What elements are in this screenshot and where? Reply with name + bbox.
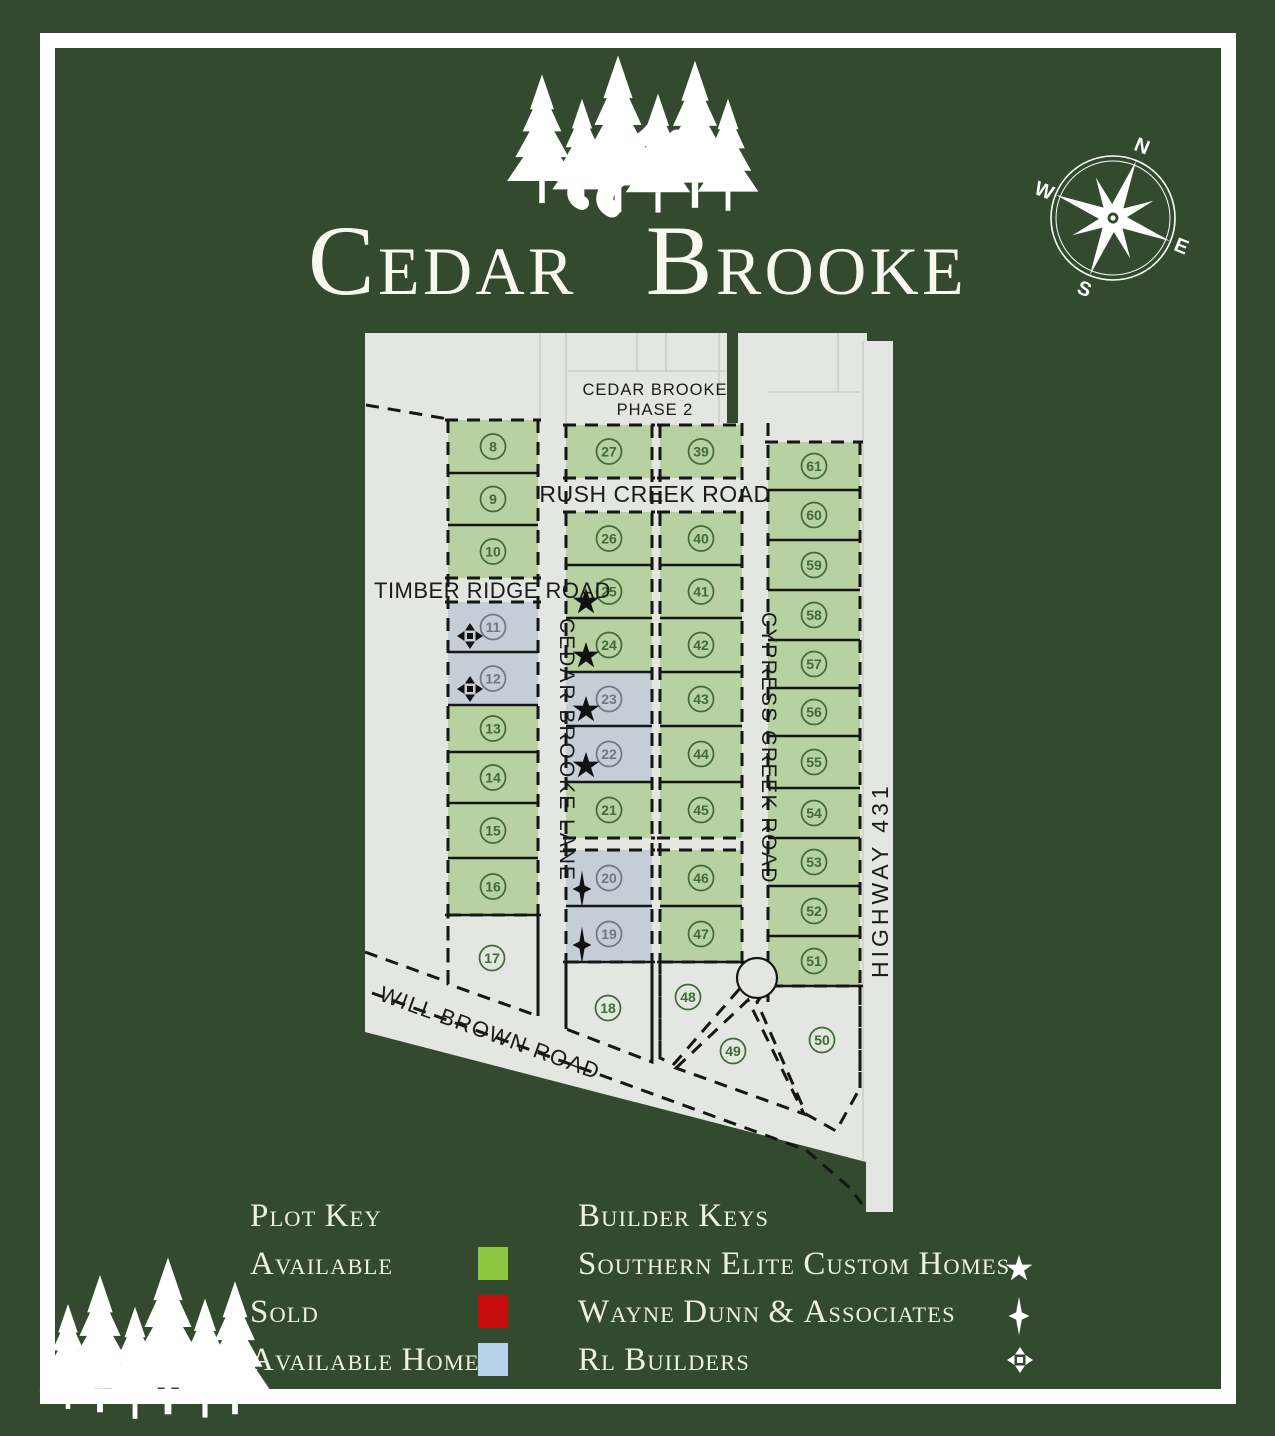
- site-map: 8910111213141516272625242322212019394041…: [360, 330, 940, 1220]
- lot-number: 39: [693, 444, 709, 460]
- road-label-rush-creek: RUSH CREEK ROAD: [539, 481, 770, 507]
- road-label-highway-431: HIGHWAY 431: [867, 782, 893, 978]
- lot-number: 13: [485, 721, 501, 737]
- lot-number: 17: [484, 950, 500, 966]
- lot-number: 44: [693, 746, 709, 762]
- lot-number: 11: [486, 619, 501, 635]
- lot-number: 47: [693, 926, 709, 942]
- lot-number: 56: [806, 704, 822, 720]
- lot-number: 43: [693, 691, 709, 707]
- lot-number: 49: [725, 1043, 741, 1059]
- lot-number: 24: [601, 637, 617, 653]
- lot-number: 52: [806, 903, 822, 919]
- lot-number: 45: [693, 802, 709, 818]
- lot-number: 21: [601, 802, 617, 818]
- compass-n: N: [1131, 134, 1153, 160]
- lot-number: 55: [806, 754, 822, 770]
- lot-number: 40: [693, 531, 709, 547]
- lot-number: 16: [485, 879, 501, 895]
- road-label-cypress-creek: CYPRESS CREEK ROAD: [757, 612, 780, 884]
- lot-number: 48: [680, 989, 696, 1005]
- lot-number: 42: [693, 637, 709, 653]
- road-label-timber-ridge: TIMBER RIDGE ROAD: [374, 578, 611, 603]
- lot-number: 58: [806, 607, 822, 623]
- lot-number: 27: [601, 444, 617, 460]
- lot-number: 10: [485, 544, 501, 560]
- swatch-sold: [478, 1295, 508, 1328]
- cross-icon: [1004, 1344, 1036, 1376]
- compass-s: S: [1074, 277, 1095, 302]
- lot-number: 60: [806, 507, 822, 523]
- swatch-available-homes: [478, 1343, 508, 1376]
- legend-label-rl-builders: RL Builders: [578, 1342, 750, 1379]
- corner-trees-icon: [30, 1232, 270, 1422]
- lot-number: 61: [806, 458, 822, 474]
- builder-keys-title: Builder Keys: [578, 1198, 769, 1235]
- compass-e: E: [1171, 234, 1192, 259]
- legend-label-southern-elite: Southern Elite Custom Homes: [578, 1246, 1010, 1283]
- plot-key-title: Plot Key: [250, 1198, 382, 1235]
- lot-number: 18: [600, 1000, 616, 1016]
- lot-number: 50: [814, 1032, 830, 1048]
- compass-rose-icon: N E S W: [1023, 128, 1203, 308]
- lot-number: 19: [601, 926, 617, 942]
- road-label-cedar-brooke-lane: CEDAR BROOKE LANE: [555, 618, 578, 882]
- lot-number: 26: [601, 531, 617, 547]
- phase2-label-line2: PHASE 2: [617, 401, 694, 419]
- star4-icon: [1002, 1296, 1036, 1336]
- swatch-available: [478, 1247, 508, 1280]
- lot-number: 59: [806, 557, 822, 573]
- lot-number: 41: [693, 584, 709, 600]
- legend-label-available-homes: Available Homes: [250, 1342, 493, 1379]
- lot-number: 57: [806, 656, 822, 672]
- phase2-label-line1: CEDAR BROOKE: [583, 381, 728, 399]
- legend-label-available: Available: [250, 1246, 393, 1283]
- lot-number: 22: [601, 746, 617, 762]
- lot-number: 14: [485, 770, 501, 786]
- star5-icon: [1002, 1252, 1036, 1286]
- map-top-gap: [727, 333, 738, 423]
- lot-number: 54: [806, 805, 822, 821]
- lot-number: 12: [485, 671, 501, 687]
- lot-number: 23: [601, 691, 617, 707]
- lot-number: 51: [806, 953, 822, 969]
- lot-number: 46: [693, 870, 709, 886]
- lot-number: 9: [489, 491, 497, 507]
- lot-number: 8: [489, 439, 497, 455]
- lot-number: 15: [485, 823, 501, 839]
- cedar-brooke-poster: { "title": "Cedar Brooke", "compass": { …: [0, 0, 1275, 1436]
- lot-number: 53: [806, 854, 822, 870]
- legend-label-wayne-dunn: Wayne Dunn & Associates: [578, 1294, 956, 1331]
- cul-de-sac: [737, 958, 777, 998]
- lot-number: 20: [601, 870, 617, 886]
